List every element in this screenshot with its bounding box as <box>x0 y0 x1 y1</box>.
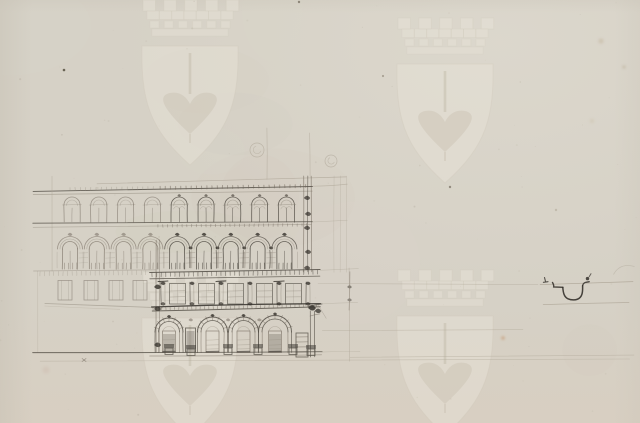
drawing-canvas <box>0 0 640 423</box>
scanned-drawing-sheet <box>0 0 640 423</box>
